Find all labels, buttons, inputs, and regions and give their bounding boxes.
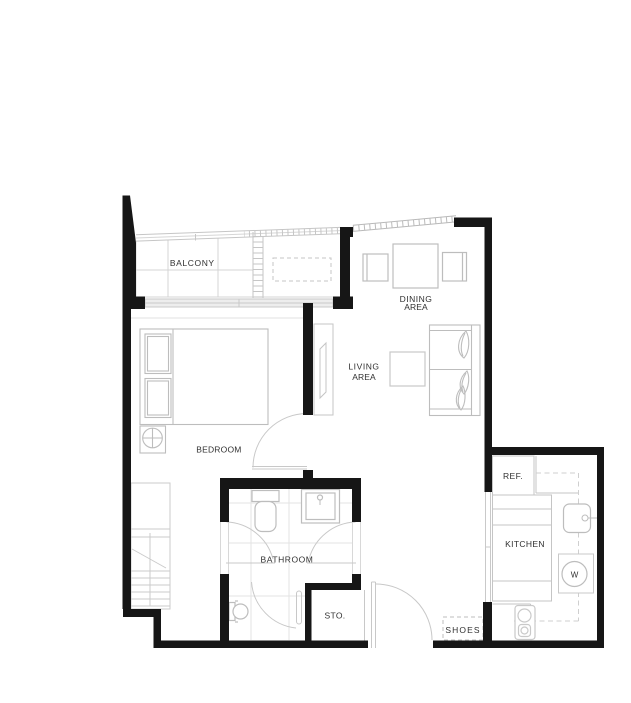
svg-text:STO.: STO. [325,610,346,620]
svg-text:W: W [571,571,579,580]
svg-text:BEDROOM: BEDROOM [196,445,241,455]
svg-text:KITCHEN: KITCHEN [505,539,545,549]
svg-text:AREA: AREA [404,302,428,312]
svg-text:BALCONY: BALCONY [170,258,215,268]
svg-text:SHOES: SHOES [445,625,480,635]
svg-text:REF.: REF. [503,471,523,481]
svg-text:BATHROOM: BATHROOM [261,555,314,565]
svg-text:AREA: AREA [352,372,376,382]
svg-text:LIVING: LIVING [348,362,379,372]
